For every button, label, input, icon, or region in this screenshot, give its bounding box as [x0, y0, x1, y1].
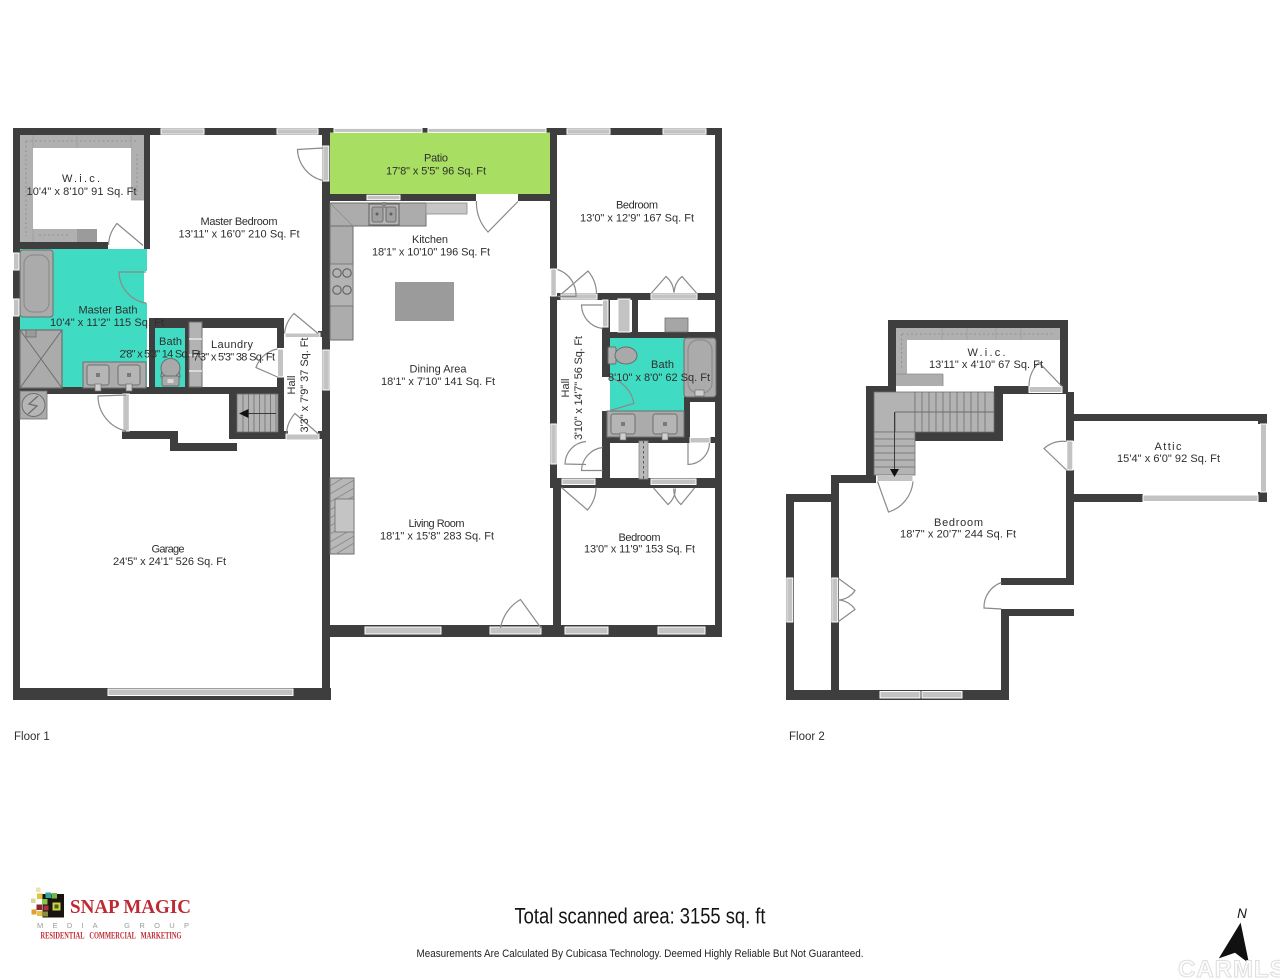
svg-text:N: N [1237, 906, 1247, 921]
svg-text:W.i.c.: W.i.c. [968, 347, 1006, 359]
svg-text:Floor 1: Floor 1 [14, 731, 50, 743]
svg-text:Laundry: Laundry [211, 339, 254, 351]
svg-text:Living Room: Living Room [409, 518, 465, 530]
svg-text:Hall: Hall [560, 379, 572, 398]
svg-text:18'1" x 10'10" 196 Sq. Ft: 18'1" x 10'10" 196 Sq. Ft [372, 247, 490, 259]
svg-text:Bedroom: Bedroom [616, 200, 658, 212]
svg-text:17'8" x 5'5" 96 Sq. Ft: 17'8" x 5'5" 96 Sq. Ft [386, 166, 486, 178]
svg-text:18'1" x 7'10" 141 Sq. Ft: 18'1" x 7'10" 141 Sq. Ft [381, 376, 495, 388]
svg-text:Bedroom: Bedroom [934, 517, 983, 529]
svg-text:Patio: Patio [424, 153, 448, 165]
svg-text:Total scanned area: 3155 sq. f: Total scanned area: 3155 sq. ft [515, 904, 767, 929]
svg-text:Bedroom: Bedroom [619, 532, 661, 544]
svg-text:Bath: Bath [159, 336, 182, 348]
svg-text:3'3" x 7'9" 37 Sq. Ft: 3'3" x 7'9" 37 Sq. Ft [299, 338, 311, 433]
svg-text:RESIDENTIAL COMMERCIAL MAR: RESIDENTIAL COMMERCIAL MARKETING [41, 931, 182, 941]
svg-text:Attic: Attic [1155, 441, 1183, 453]
svg-text:Master Bath: Master Bath [79, 305, 138, 317]
svg-text:7'3" x 5'3" 38 Sq. Ft: 7'3" x 5'3" 38 Sq. Ft [193, 352, 275, 364]
svg-text:18'7" x 20'7" 244 Sq. Ft: 18'7" x 20'7" 244 Sq. Ft [900, 529, 1016, 541]
svg-text:Measurements Are Calculated By: Measurements Are Calculated By Cubicasa … [417, 948, 864, 960]
svg-text:Garage: Garage [152, 544, 185, 556]
svg-text:8'10" x 8'0" 62 Sq. Ft: 8'10" x 8'0" 62 Sq. Ft [608, 372, 710, 384]
svg-text:18'1" x 15'8" 283 Sq. Ft: 18'1" x 15'8" 283 Sq. Ft [380, 531, 494, 543]
svg-text:CARMLS, INC: CARMLS, INC [1178, 956, 1280, 980]
svg-text:Floor 2: Floor 2 [789, 731, 825, 743]
svg-text:13'11" x 4'10" 67 Sq. Ft: 13'11" x 4'10" 67 Sq. Ft [929, 359, 1043, 371]
svg-text:SNAP MAGIC: SNAP MAGIC [70, 896, 191, 918]
svg-text:13'0" x 12'9" 167 Sq. Ft: 13'0" x 12'9" 167 Sq. Ft [580, 213, 694, 225]
svg-text:Hall: Hall [286, 376, 298, 395]
svg-text:W.i.c.: W.i.c. [62, 173, 100, 185]
svg-text:15'4" x 6'0" 92 Sq. Ft: 15'4" x 6'0" 92 Sq. Ft [1117, 453, 1220, 465]
svg-text:24'5" x 24'1" 526 Sq. Ft: 24'5" x 24'1" 526 Sq. Ft [113, 556, 226, 568]
svg-text:10'4" x 11'2" 115 Sq. Ft: 10'4" x 11'2" 115 Sq. Ft [50, 317, 164, 329]
svg-text:Bath: Bath [651, 359, 674, 371]
svg-text:2'8" x 5'3" 14 Sq. Ft: 2'8" x 5'3" 14 Sq. Ft [120, 349, 201, 361]
svg-text:13'0" x 11'9" 153 Sq. Ft: 13'0" x 11'9" 153 Sq. Ft [584, 544, 695, 556]
svg-text:3'10" x 14'7" 56 Sq. Ft: 3'10" x 14'7" 56 Sq. Ft [573, 336, 585, 440]
svg-text:Master Bedroom: Master Bedroom [201, 216, 278, 228]
svg-text:13'11" x 16'0" 210 Sq. Ft: 13'11" x 16'0" 210 Sq. Ft [179, 229, 300, 241]
svg-text:Dining Area: Dining Area [410, 364, 468, 376]
svg-text:10'4" x 8'10" 91 Sq. Ft: 10'4" x 8'10" 91 Sq. Ft [27, 186, 137, 198]
svg-text:Kitchen: Kitchen [412, 234, 448, 246]
